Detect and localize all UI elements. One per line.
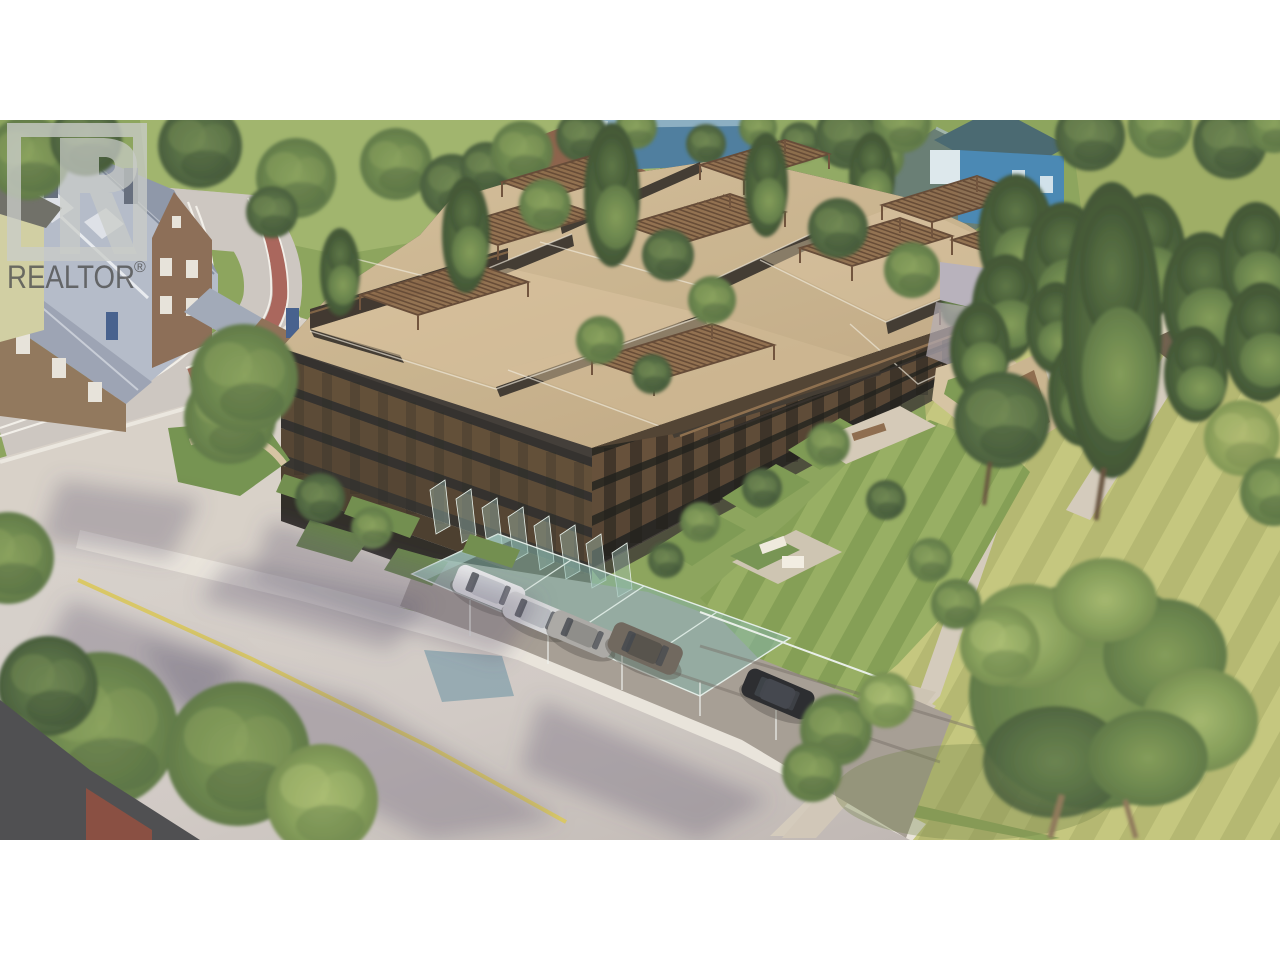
svg-text:®: ® [134,259,146,276]
svg-text:REALTOR: REALTOR [7,259,135,295]
